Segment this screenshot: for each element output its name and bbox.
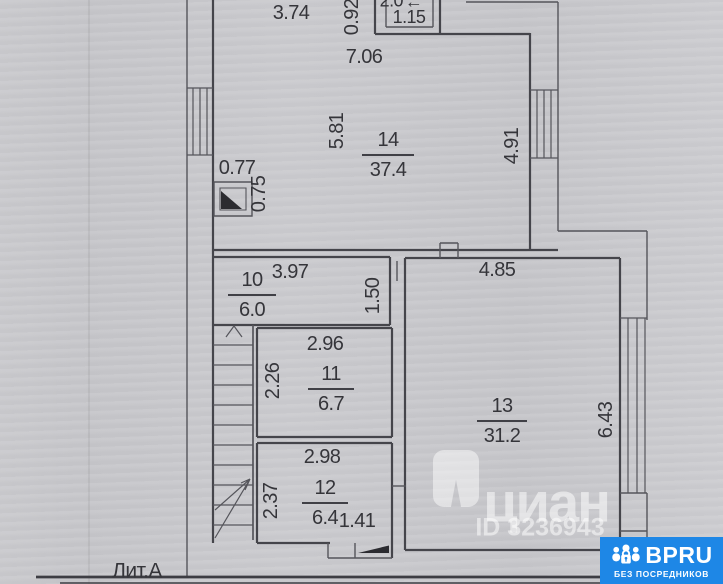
room-number: 12 [314, 478, 335, 498]
room-label-12: 12 6.4 [302, 478, 348, 528]
fraction-bar [362, 154, 414, 156]
floorplan-scan: 3.74 0.92 2.0← 1.15 7.06 5.81 4.91 0.77 … [0, 0, 723, 584]
dim-top-small: 0.92 [342, 0, 362, 35]
room-label-11: 11 6.7 [308, 364, 354, 414]
dim-room13-width: 4.85 [479, 260, 516, 280]
window-room14-right [530, 90, 558, 158]
room-area: 6.7 [318, 394, 344, 414]
stair-direction-arrow [215, 479, 250, 538]
people-lock-icon [610, 543, 642, 569]
fraction-bar [477, 420, 527, 422]
dim-room13-depth: 6.43 [596, 402, 616, 439]
dim-room11-depth: 2.26 [263, 363, 283, 400]
niche-mark [221, 191, 242, 209]
fraction-bar [308, 388, 354, 390]
badge-tagline: БЕЗ ПОСРЕДНИКОВ [614, 570, 709, 579]
room-area: 6.0 [239, 300, 265, 320]
room-label-13: 13 31.2 [477, 396, 527, 446]
room-area: 6.4 [312, 508, 338, 528]
fraction-bar [228, 294, 276, 296]
dim-room10-width: 3.97 [272, 262, 309, 282]
badge-row: BPRU [610, 543, 712, 569]
dim-room14-depth-right: 4.91 [502, 128, 522, 165]
staircase [213, 325, 253, 540]
dim-room14-depth-left: 5.81 [327, 113, 347, 150]
watermark-id: ID 3236943 [475, 514, 604, 543]
dim-room11-width: 2.96 [307, 334, 344, 354]
stair-up-arrow [226, 326, 242, 337]
dim-top-segment: 3.74 [273, 3, 310, 23]
room-number: 13 [491, 396, 512, 416]
room-label-14: 14 37.4 [362, 130, 414, 180]
room-number: 11 [321, 364, 341, 384]
balcony-width-label: 1.15 [393, 8, 426, 26]
room-number: 10 [241, 270, 262, 290]
litera-label: Лит.А [112, 561, 162, 582]
dim-room12-depth: 2.37 [261, 483, 281, 520]
room-label-10: 10 6.0 [228, 270, 276, 320]
room-number: 14 [377, 130, 398, 150]
dim-room10-depth: 1.50 [363, 278, 383, 315]
bpru-badge: BPRU БЕЗ ПОСРЕДНИКОВ [600, 537, 723, 584]
dim-niche-depth: 0.75 [249, 176, 269, 213]
dim-room12-width: 2.98 [304, 447, 341, 467]
window-room13-right [620, 318, 647, 493]
fraction-bar [302, 502, 348, 504]
entrance-mark [358, 546, 389, 554]
badge-brand: BPRU [645, 544, 712, 567]
room-area: 31.2 [484, 426, 521, 446]
window-left [187, 88, 213, 155]
room-area: 37.4 [370, 160, 407, 180]
dim-room14-width: 7.06 [346, 47, 383, 67]
